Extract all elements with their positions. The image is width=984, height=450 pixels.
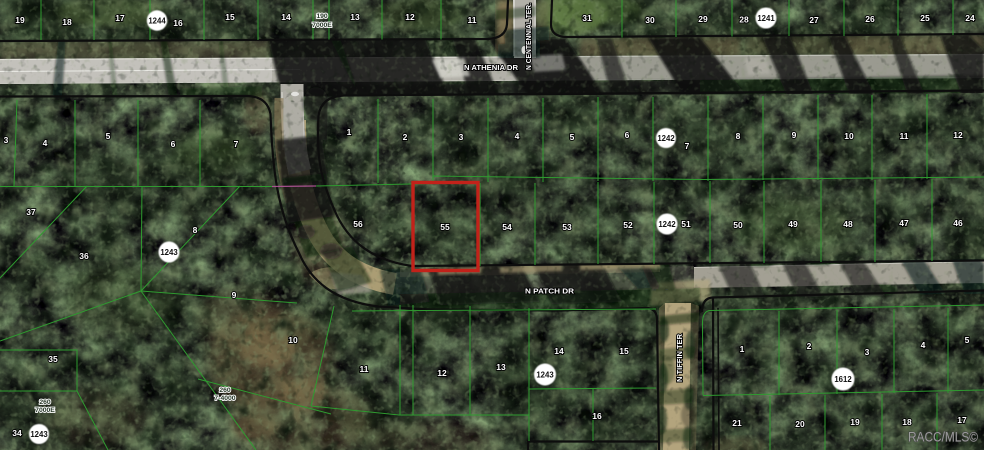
svg-text:31: 31	[582, 13, 592, 23]
svg-text:1244: 1244	[148, 17, 166, 26]
svg-text:35: 35	[48, 354, 58, 364]
svg-text:2: 2	[807, 341, 812, 351]
svg-text:9: 9	[792, 130, 797, 140]
svg-text:260: 260	[39, 399, 51, 406]
svg-text:3: 3	[865, 347, 870, 357]
svg-text:2: 2	[403, 132, 408, 142]
svg-text:52: 52	[623, 220, 633, 230]
svg-text:1612: 1612	[834, 375, 852, 384]
svg-text:27: 27	[809, 15, 819, 25]
svg-text:15: 15	[619, 346, 629, 356]
svg-text:7: 7	[685, 141, 690, 151]
svg-text:5: 5	[965, 335, 970, 345]
svg-text:17: 17	[115, 13, 125, 23]
svg-text:N CENTENNIAL TER.: N CENTENNIAL TER.	[526, 3, 533, 70]
svg-text:1: 1	[347, 127, 352, 137]
svg-text:RACC/MLS©: RACC/MLS©	[908, 430, 978, 445]
svg-text:50: 50	[733, 220, 743, 230]
svg-text:12: 12	[953, 130, 963, 140]
svg-text:10: 10	[844, 131, 854, 141]
svg-text:55: 55	[440, 222, 450, 232]
svg-text:1: 1	[740, 344, 745, 354]
svg-text:8: 8	[736, 131, 741, 141]
svg-text:51: 51	[681, 219, 691, 229]
svg-text:4: 4	[921, 340, 926, 350]
svg-text:7000E: 7000E	[312, 22, 332, 29]
svg-text:10: 10	[288, 335, 298, 345]
svg-text:6: 6	[625, 130, 630, 140]
svg-text:N ATHENIA DR: N ATHENIA DR	[464, 63, 519, 72]
svg-text:36: 36	[79, 251, 89, 261]
svg-text:25: 25	[920, 13, 930, 23]
svg-text:9: 9	[232, 290, 237, 300]
svg-text:8: 8	[193, 225, 198, 235]
svg-text:49: 49	[788, 219, 798, 229]
svg-text:190: 190	[316, 13, 328, 20]
svg-text:13: 13	[496, 362, 506, 372]
svg-text:11: 11	[468, 15, 477, 25]
svg-text:20: 20	[795, 419, 805, 429]
svg-text:3: 3	[4, 135, 9, 145]
svg-text:46: 46	[953, 218, 963, 228]
svg-text:N TIFFIN TER: N TIFFIN TER	[677, 334, 684, 382]
svg-text:7-4000: 7-4000	[214, 395, 235, 402]
svg-text:53: 53	[562, 222, 572, 232]
svg-text:4: 4	[515, 131, 520, 141]
svg-text:1242: 1242	[658, 220, 676, 229]
svg-text:6: 6	[171, 139, 176, 149]
svg-text:34: 34	[12, 428, 22, 438]
svg-text:16: 16	[173, 18, 183, 28]
svg-text:24: 24	[965, 13, 975, 23]
svg-text:1242: 1242	[657, 134, 675, 143]
svg-text:11: 11	[900, 131, 909, 141]
svg-text:4: 4	[43, 138, 48, 148]
svg-text:15: 15	[225, 12, 235, 22]
svg-text:1243: 1243	[536, 371, 554, 380]
svg-text:7: 7	[234, 139, 239, 149]
svg-text:26: 26	[865, 14, 875, 24]
svg-text:12: 12	[405, 12, 415, 22]
svg-text:17: 17	[957, 415, 967, 425]
svg-text:12: 12	[437, 368, 447, 378]
svg-text:48: 48	[843, 219, 853, 229]
svg-text:260: 260	[219, 387, 231, 394]
svg-text:N PATCH DR: N PATCH DR	[525, 287, 575, 296]
svg-text:14: 14	[281, 12, 291, 22]
svg-text:19: 19	[850, 417, 860, 427]
svg-text:13: 13	[350, 12, 360, 22]
svg-text:37: 37	[26, 207, 36, 217]
svg-text:3: 3	[459, 132, 464, 142]
svg-text:1243: 1243	[160, 248, 178, 257]
svg-text:1241: 1241	[757, 14, 775, 23]
svg-text:1243: 1243	[30, 430, 48, 439]
svg-text:14: 14	[554, 346, 564, 356]
svg-text:7000E: 7000E	[35, 407, 55, 414]
svg-text:18: 18	[902, 417, 912, 427]
svg-text:21: 21	[732, 418, 742, 428]
svg-text:56: 56	[353, 219, 363, 229]
svg-text:54: 54	[502, 222, 512, 232]
svg-text:18: 18	[62, 17, 72, 27]
svg-text:16: 16	[592, 411, 602, 421]
svg-text:28: 28	[739, 15, 749, 25]
svg-text:5: 5	[570, 132, 575, 142]
svg-text:5: 5	[106, 131, 111, 141]
svg-text:47: 47	[899, 218, 909, 228]
svg-text:19: 19	[15, 15, 25, 25]
svg-text:30: 30	[645, 15, 655, 25]
svg-text:29: 29	[698, 14, 708, 24]
svg-text:11: 11	[360, 364, 369, 374]
